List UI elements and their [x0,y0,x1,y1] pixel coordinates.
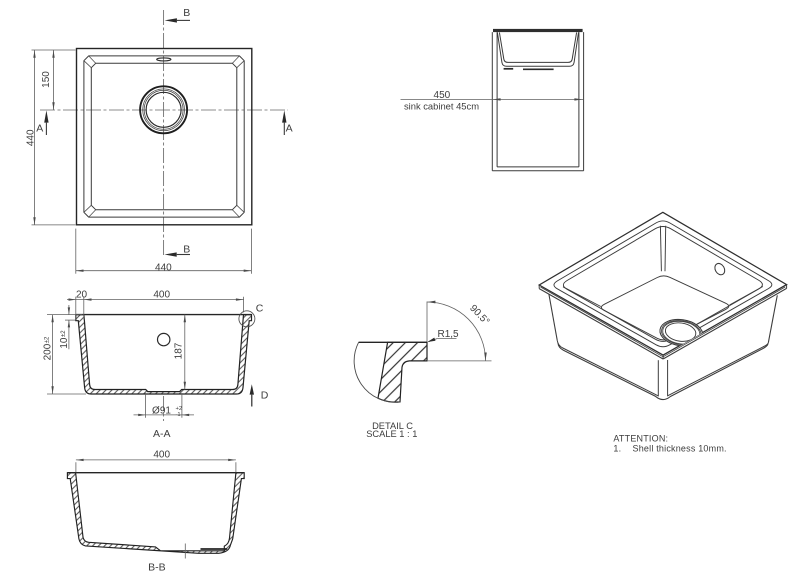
svg-text:Ø91: Ø91 [152,405,171,416]
svg-text:A-A: A-A [153,428,171,440]
svg-text:1.: 1. [613,443,621,453]
svg-text:-1: -1 [176,412,181,418]
svg-text:Shell thickness 10mm.: Shell thickness 10mm. [633,443,727,453]
svg-text:187: 187 [173,342,184,359]
svg-text:440: 440 [25,129,36,146]
svg-text:400: 400 [153,450,170,461]
svg-text:400: 400 [153,289,170,300]
svg-text:C: C [256,303,264,315]
svg-text:ATTENTION:: ATTENTION: [613,434,668,444]
svg-text:A: A [286,122,293,134]
svg-text:B: B [183,244,190,256]
svg-text:150: 150 [41,71,52,88]
svg-text:440: 440 [155,262,172,273]
svg-text:SCALE 1 : 1: SCALE 1 : 1 [366,429,417,439]
svg-text:A: A [36,122,43,134]
svg-text:B-B: B-B [148,561,166,573]
svg-text:20: 20 [76,289,88,300]
svg-text:D: D [261,390,269,402]
svg-text:sink cabinet 45cm: sink cabinet 45cm [404,100,479,111]
svg-text:B: B [183,7,190,19]
